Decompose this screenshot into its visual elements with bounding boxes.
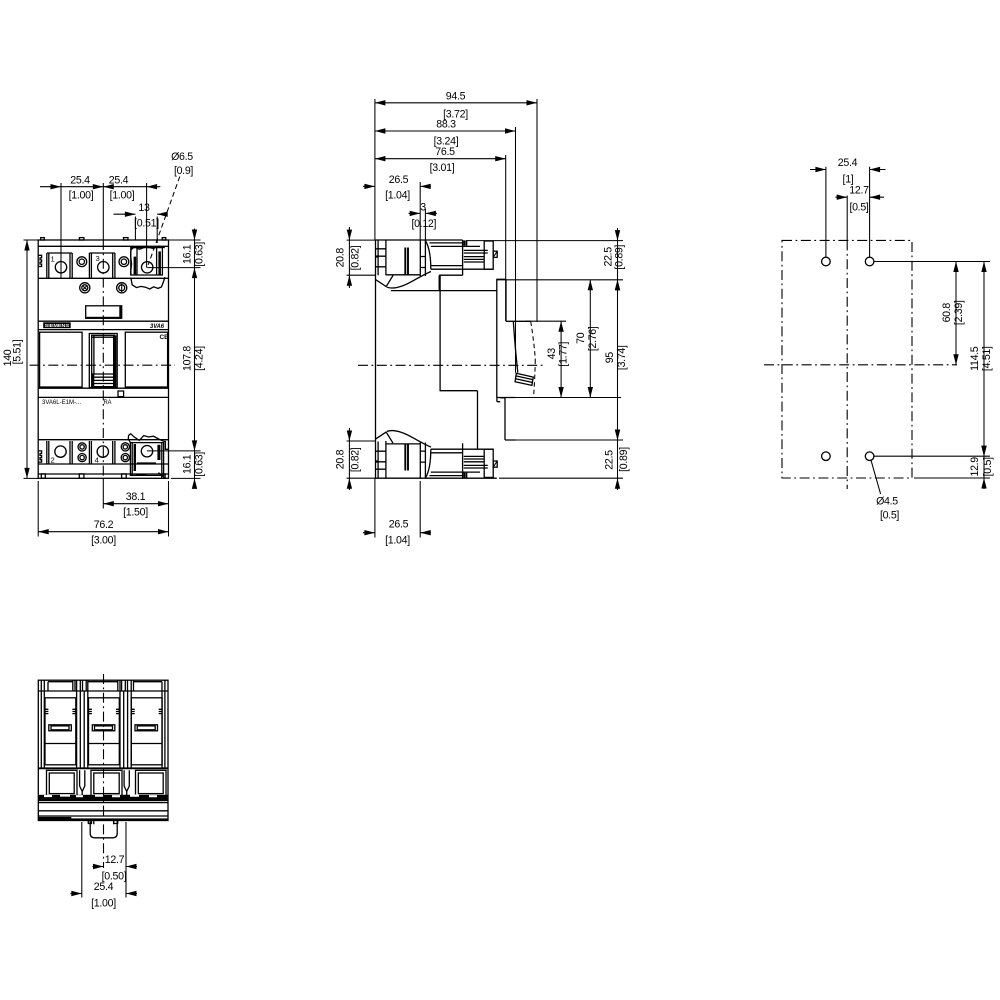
svg-text:[0.5]: [0.5]	[880, 510, 899, 522]
svg-text:25.4: 25.4	[109, 175, 129, 187]
svg-text:22.5: 22.5	[603, 450, 615, 470]
svg-text:25.4: 25.4	[838, 157, 858, 169]
svg-text:94.5: 94.5	[446, 90, 466, 102]
svg-text:SIEMENS: SIEMENS	[45, 323, 70, 329]
svg-text:26.5: 26.5	[389, 174, 409, 186]
svg-text:1: 1	[50, 254, 54, 263]
svg-text:16.1: 16.1	[181, 244, 193, 264]
svg-text:[0.82]: [0.82]	[350, 245, 362, 270]
svg-text:Ø4.5: Ø4.5	[876, 496, 898, 508]
svg-text:[0.5]: [0.5]	[849, 202, 868, 214]
svg-text:[0.12]: [0.12]	[411, 218, 436, 230]
svg-text:107.8: 107.8	[181, 346, 193, 371]
svg-text:4: 4	[95, 455, 99, 464]
svg-text:[0.82]: [0.82]	[350, 447, 362, 472]
svg-text:[1.50]: [1.50]	[123, 507, 148, 519]
svg-text:[3.00]: [3.00]	[91, 535, 116, 547]
svg-text:3VA6: 3VA6	[150, 323, 164, 330]
svg-text:20.8: 20.8	[335, 248, 347, 268]
svg-text:[0.89]: [0.89]	[613, 244, 625, 269]
svg-text:76.5: 76.5	[435, 146, 455, 158]
svg-text:[0.9]: [0.9]	[174, 165, 193, 177]
svg-text:Ø6.5: Ø6.5	[171, 151, 193, 163]
svg-text:12.7: 12.7	[105, 854, 125, 866]
svg-text:26.5: 26.5	[389, 519, 409, 531]
svg-text:[1]: [1]	[843, 174, 854, 186]
svg-text:[1.00]: [1.00]	[69, 190, 94, 202]
svg-text:[4.51]: [4.51]	[981, 346, 993, 371]
svg-text:20.8: 20.8	[335, 449, 347, 469]
svg-text:[4.24]: [4.24]	[193, 346, 205, 371]
svg-text:[2.76]: [2.76]	[587, 326, 599, 351]
svg-text:25.4: 25.4	[70, 175, 90, 187]
svg-text:[1.00]: [1.00]	[91, 898, 116, 910]
svg-text:12.7: 12.7	[849, 185, 869, 197]
svg-text:[3.74]: [3.74]	[616, 345, 628, 370]
svg-text:43: 43	[546, 348, 558, 360]
svg-text:3: 3	[95, 254, 99, 263]
svg-text:[0.89]: [0.89]	[618, 447, 630, 472]
svg-text:[0.5]: [0.5]	[982, 457, 994, 476]
svg-text:[1.77]: [1.77]	[558, 341, 570, 366]
svg-text:95: 95	[604, 352, 616, 364]
svg-text:3: 3	[420, 201, 426, 213]
svg-text:88.3: 88.3	[436, 118, 456, 130]
svg-text:13: 13	[138, 202, 150, 214]
svg-text:76.2: 76.2	[94, 519, 114, 531]
svg-text:2: 2	[50, 455, 54, 464]
svg-text:60.8: 60.8	[941, 303, 953, 323]
svg-text:[0.63]: [0.63]	[193, 242, 205, 267]
svg-text:[3.01]: [3.01]	[430, 162, 455, 174]
svg-text:70: 70	[575, 332, 587, 344]
svg-text:RA: RA	[104, 399, 113, 406]
svg-text:[1.04]: [1.04]	[385, 535, 410, 547]
svg-text:114.5: 114.5	[969, 346, 981, 371]
svg-text:[5.51]: [5.51]	[12, 339, 24, 364]
svg-text:[0.63]: [0.63]	[193, 452, 205, 477]
svg-text:[2.39]: [2.39]	[953, 300, 965, 325]
svg-text:38.1: 38.1	[126, 491, 146, 503]
svg-text:25.4: 25.4	[94, 881, 114, 893]
svg-text:[0.51]: [0.51]	[134, 218, 159, 230]
svg-text:[1.04]: [1.04]	[385, 190, 410, 202]
svg-text:12.9: 12.9	[969, 457, 981, 477]
svg-text:[1.00]: [1.00]	[110, 190, 135, 202]
svg-text:3VA6L-E1M-...: 3VA6L-E1M-...	[42, 399, 81, 406]
svg-text:16.1: 16.1	[181, 454, 193, 474]
